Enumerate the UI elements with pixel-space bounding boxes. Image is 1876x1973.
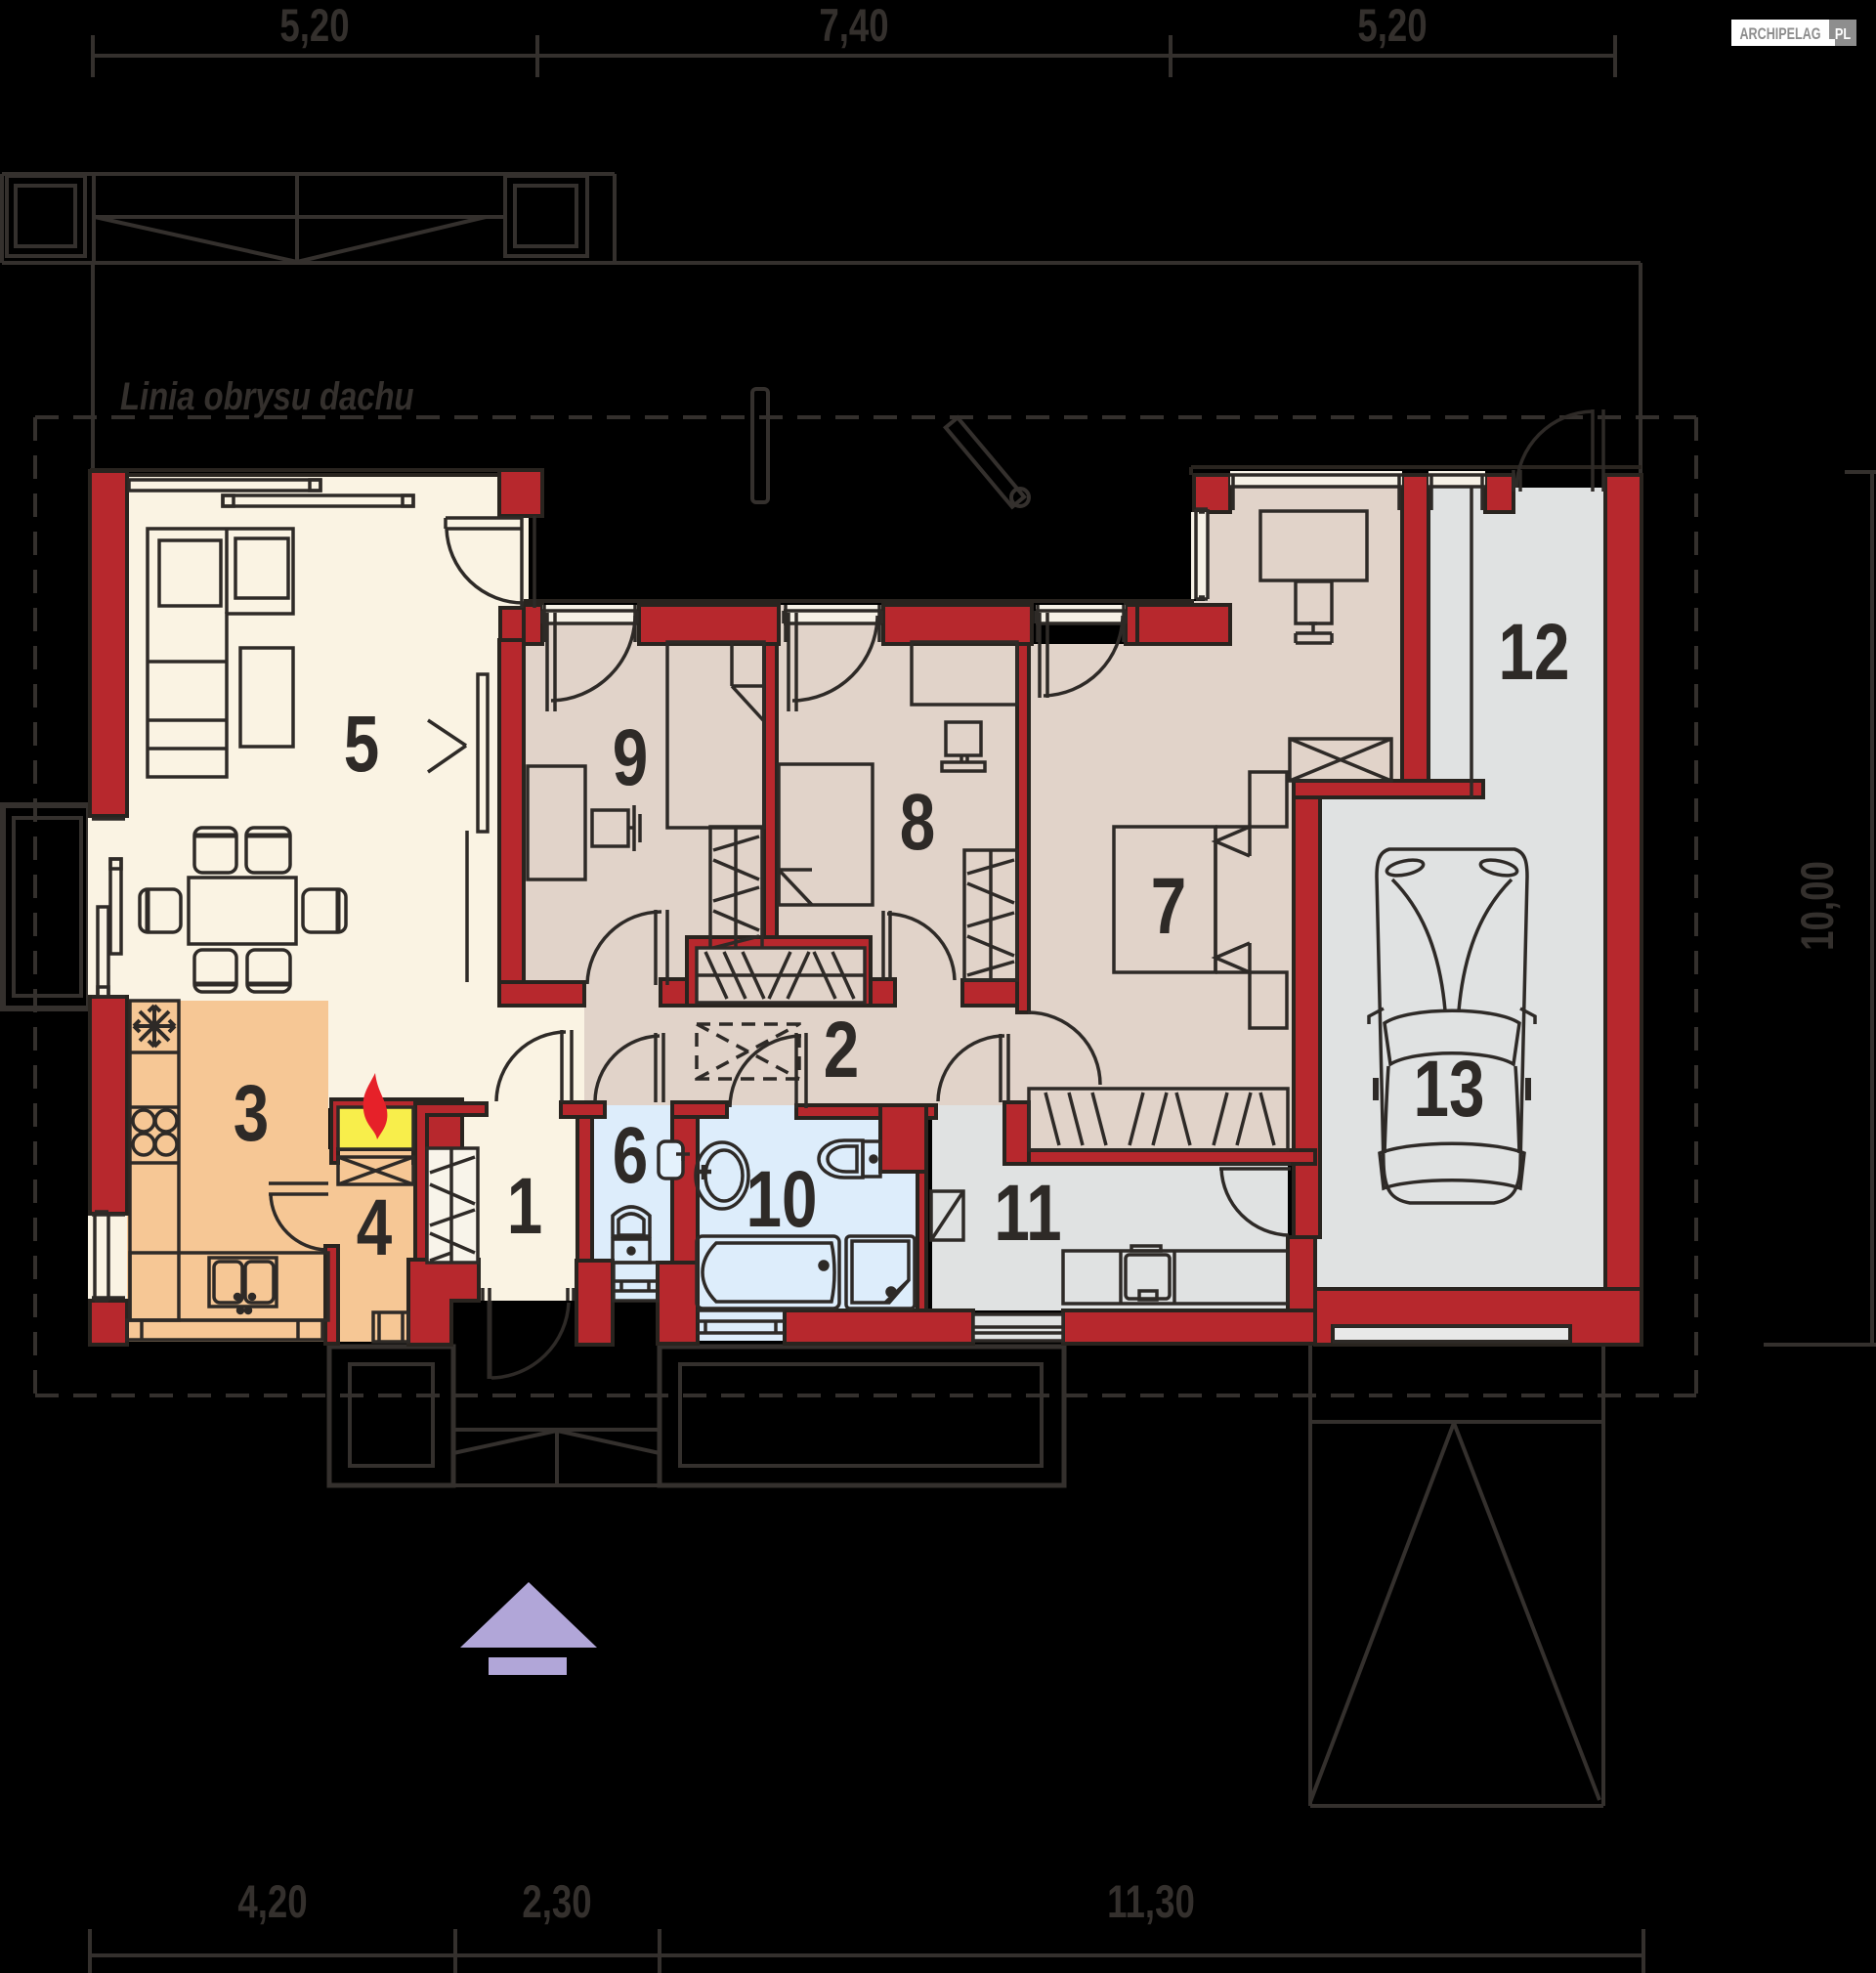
svg-text:11,30: 11,30 <box>1107 1876 1195 1927</box>
svg-text:2,30: 2,30 <box>522 1876 591 1927</box>
svg-text:13: 13 <box>1414 1044 1485 1134</box>
svg-text:Linia obrysu dachu: Linia obrysu dachu <box>120 374 414 418</box>
svg-text:5: 5 <box>344 699 379 789</box>
svg-text:5,20: 5,20 <box>279 0 349 51</box>
svg-text:12: 12 <box>1499 607 1570 697</box>
svg-text:7: 7 <box>1151 861 1186 951</box>
svg-text:2: 2 <box>824 1005 859 1094</box>
svg-text:9: 9 <box>613 712 648 802</box>
svg-text:8: 8 <box>900 777 935 867</box>
svg-text:1: 1 <box>507 1161 542 1251</box>
svg-text:4: 4 <box>357 1182 392 1272</box>
svg-text:4,20: 4,20 <box>237 1876 307 1927</box>
svg-text:11: 11 <box>994 1168 1061 1258</box>
svg-text:6: 6 <box>613 1110 648 1200</box>
svg-text:3: 3 <box>234 1068 269 1158</box>
svg-text:10,00: 10,00 <box>1792 861 1843 951</box>
svg-text:7,40: 7,40 <box>819 0 888 51</box>
svg-text:10: 10 <box>746 1154 818 1244</box>
svg-text:5,20: 5,20 <box>1357 0 1427 51</box>
svg-text:PL: PL <box>1835 26 1851 44</box>
svg-text:ARCHIPELAG: ARCHIPELAG <box>1739 24 1820 43</box>
